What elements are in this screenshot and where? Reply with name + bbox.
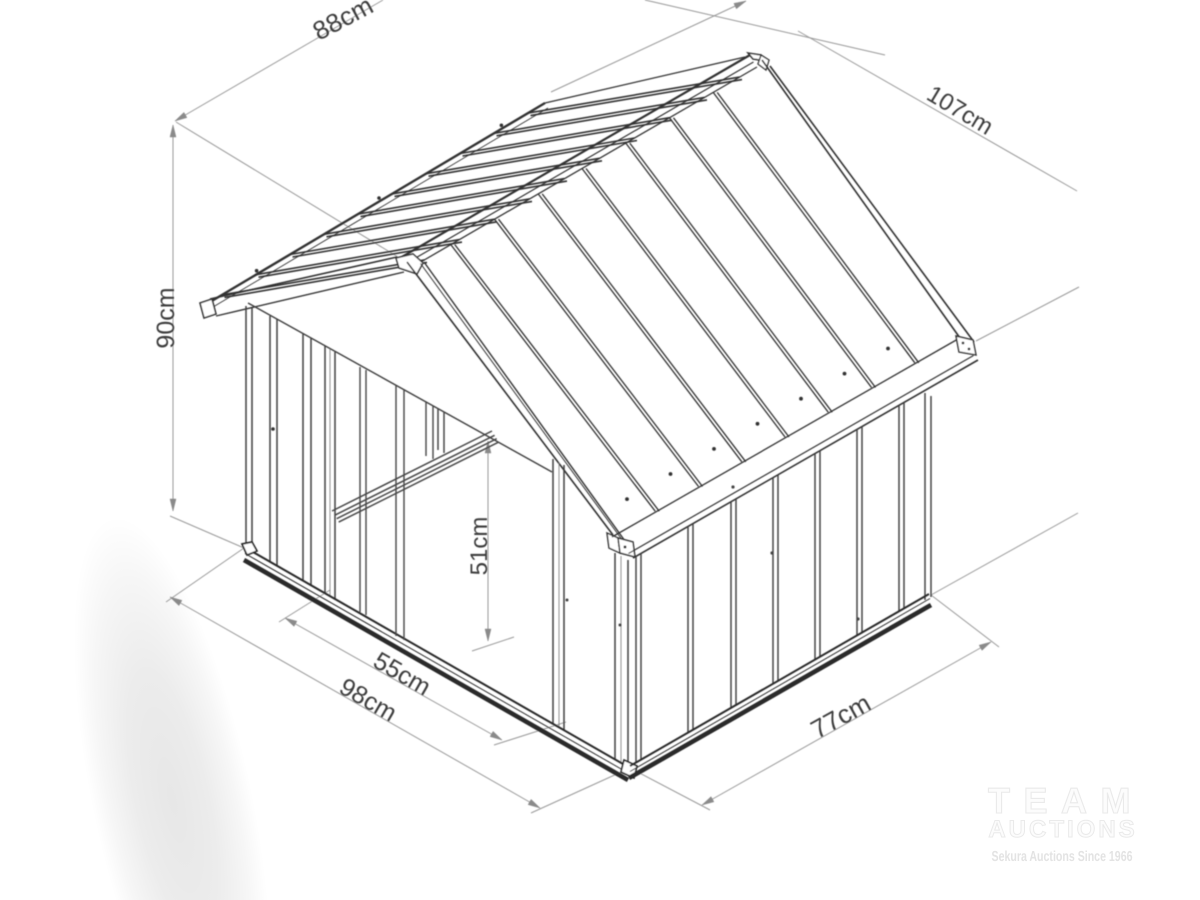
svg-text:51cm: 51cm [466, 517, 493, 576]
svg-text:AUCTIONS: AUCTIONS [988, 816, 1137, 843]
svg-text:90cm: 90cm [152, 287, 180, 348]
svg-text:TEAM: TEAM [988, 780, 1144, 821]
svg-text:Sekura Auctions Since 1966: Sekura Auctions Since 1966 [992, 849, 1133, 865]
